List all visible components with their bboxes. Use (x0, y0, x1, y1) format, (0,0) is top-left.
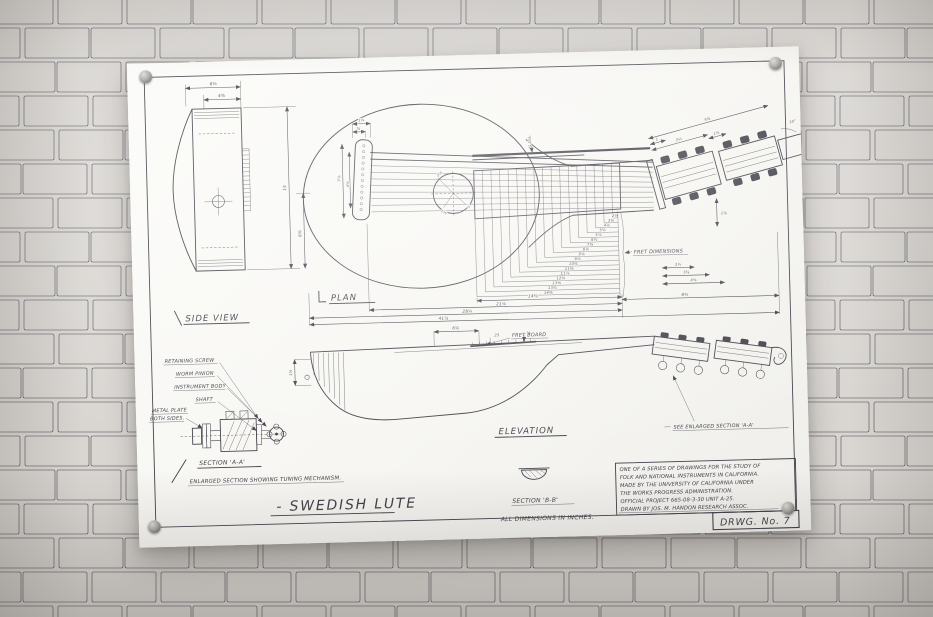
brick (0, 470, 55, 500)
brick (671, 538, 735, 568)
fret-dim-extension (535, 215, 536, 263)
head-dim-low1: 2½ (675, 262, 682, 266)
part-both-sides: BOTH SIDES. (150, 415, 185, 422)
brick (0, 62, 55, 92)
brick (57, 470, 121, 500)
fret-line (499, 169, 500, 217)
units-note: ALL DIMENSIONS IN INCHES. (500, 514, 594, 523)
fret-dims-brace (621, 213, 625, 297)
head-dim-low2: 3⅝ (683, 270, 690, 274)
brick (805, 402, 869, 432)
brick (841, 232, 905, 262)
brick (24, 96, 88, 126)
body-height-dims: 15 6⅜ (243, 106, 312, 270)
fret-line (594, 164, 595, 210)
brick (57, 266, 121, 296)
brick (0, 572, 21, 602)
section-aa-label: SECTION 'A-A' (199, 459, 245, 467)
section-bb: SECTION 'B-B' ALL DIMENSIONS IN INCHES. (499, 467, 595, 523)
fret-dim-label: 14⅜ (544, 291, 553, 295)
brick (397, 0, 461, 24)
brick (805, 198, 869, 228)
head-dim-side: 1⅝ (721, 211, 728, 215)
brick (839, 368, 903, 398)
brick (601, 606, 665, 617)
brick (874, 606, 933, 617)
bridge-top-small-dim: ⅝ (357, 127, 361, 131)
brick (59, 538, 123, 568)
brick (500, 572, 564, 602)
brick (296, 572, 360, 602)
headstock-elevation (650, 327, 787, 385)
brick (24, 504, 88, 534)
brick (0, 538, 54, 568)
brick (92, 572, 156, 602)
fretboard (474, 163, 621, 219)
overall-dim-4: 8¾ (681, 292, 688, 297)
fret-dim-label: 13⅜ (552, 281, 561, 285)
brick (839, 164, 903, 194)
fret-line (568, 166, 569, 213)
side-view: 6½ 4⅜ SIDE VIEW (168, 80, 253, 325)
brick (0, 300, 19, 330)
brick (262, 606, 326, 617)
fret-dim-extension (501, 217, 503, 282)
strings (370, 145, 654, 214)
brick (602, 538, 666, 568)
brick (295, 28, 359, 58)
brick (875, 334, 933, 364)
fret-dim-label: 5⅛ (599, 228, 606, 232)
head-dim-low3: 4⅛ (690, 278, 697, 282)
fret-line (534, 168, 535, 215)
bridge-pins (360, 145, 365, 211)
brick (805, 606, 869, 617)
brick (0, 402, 53, 432)
plan-label: PLAN (331, 293, 357, 304)
fret-dim-extension (526, 215, 527, 267)
fret-line (482, 170, 483, 218)
fret-line (491, 170, 492, 218)
brick (23, 164, 87, 194)
fret-dim-extension (484, 218, 486, 292)
brick (58, 0, 122, 24)
lute-technical-drawing: 6½ 4⅜ SIDE VIEW (127, 46, 811, 547)
fret-line (577, 165, 578, 212)
brick (907, 436, 933, 466)
head-dim-seg1: 1 (655, 137, 659, 142)
brick (23, 368, 87, 398)
brick (737, 538, 801, 568)
brick (807, 266, 871, 296)
brick (91, 28, 155, 58)
body-height-dim: 15 (282, 185, 287, 191)
fret-dim-label: 11⅜ (565, 267, 574, 271)
brick (908, 572, 933, 602)
elev-fret-height-dim: .25 (493, 333, 500, 337)
fret-line (525, 168, 526, 215)
brick (0, 232, 20, 262)
elev-edge-depth-dim: 1⅝ (289, 369, 293, 376)
fret-dim-label: 9⅞ (574, 257, 581, 261)
brick (58, 402, 122, 432)
body-lower-height-dim: 6⅜ (297, 230, 302, 237)
sound-hole: 2⅝ 1⅜ ⅞ (431, 169, 476, 216)
brick (907, 232, 933, 262)
brick (873, 266, 933, 296)
brick (25, 436, 89, 466)
fret-dim-label: 7⅜ (587, 243, 594, 247)
brick (0, 606, 53, 617)
fret-line (542, 167, 543, 214)
fret-dim-extension (475, 219, 477, 297)
brick (907, 28, 933, 58)
brick (364, 28, 428, 58)
brick (365, 572, 429, 602)
brick (533, 538, 597, 568)
overall-dim-0: 14⅝ (528, 293, 538, 298)
fret-dim-extension (509, 217, 511, 278)
fret-line (560, 166, 561, 213)
note-line-3: MADE BY THE UNIVERSITY OF CALIFORNIA UND… (620, 480, 754, 490)
brick (874, 402, 933, 432)
bridge-outer-dim: 7⅞ (337, 175, 341, 182)
brick (127, 606, 191, 617)
bridge-top-wide-dim: 1¼ (358, 118, 365, 122)
brick (24, 300, 88, 330)
fret-dim-label: 13¾ (548, 286, 557, 290)
brick (466, 0, 530, 24)
brick (431, 572, 495, 602)
elevation-view: 6⅛ .25 ⅛ 1⅝ FRET BOARD (288, 317, 790, 443)
drawing-title: - SWEDISH LUTE (276, 495, 417, 515)
brick (873, 62, 933, 92)
brick (193, 606, 257, 617)
brick (329, 538, 393, 568)
head-dim-total: 5⅜ (704, 116, 711, 122)
brick (0, 164, 21, 194)
fret-dim-extension (561, 213, 562, 248)
brick (59, 334, 123, 364)
tuning-mechanism-drawing (180, 410, 287, 453)
fret-dim-label: 3⅜ (608, 218, 615, 222)
part-shaft: SHAFT (196, 397, 214, 403)
brick (0, 436, 20, 466)
photo-scene: 6½ 4⅜ SIDE VIEW (0, 0, 933, 617)
fret-line (551, 167, 552, 214)
brick (23, 572, 87, 602)
brick (0, 96, 19, 126)
fret-dim-extension (518, 216, 519, 272)
fret-dim-label: 5⅞ (595, 233, 602, 237)
brick (805, 0, 869, 24)
brick (466, 606, 530, 617)
head-dim-seg3: 1⅛ (713, 130, 720, 136)
neck-dia-note: ⅝ DIA. (528, 134, 532, 148)
brick (0, 28, 20, 58)
brick (25, 232, 89, 262)
brick (670, 0, 734, 24)
brick (331, 606, 395, 617)
brick (0, 198, 53, 228)
fret-dim-label: 2⅛ (612, 214, 619, 218)
brick (0, 0, 53, 24)
part-metal-plate: METAL PLATE (152, 407, 188, 414)
brick (601, 0, 665, 24)
fret-dim-label: 9⅛ (579, 252, 586, 256)
brick (841, 28, 905, 58)
brick (840, 300, 904, 330)
brick (875, 130, 933, 160)
section-bb-label: SECTION 'B-B' (512, 497, 558, 505)
brick (58, 606, 122, 617)
brick (739, 606, 803, 617)
side-view-peg-hatch (242, 149, 251, 211)
brick (841, 436, 905, 466)
fret-dim-extension (552, 214, 553, 253)
brick (807, 470, 871, 500)
overall-dims: 14⅝ 8¾ 21⅛ 28¼ 41⅞ (307, 213, 779, 326)
brick (57, 62, 121, 92)
fret-board-label: FRET BOARD (512, 332, 546, 339)
note-line-6: DRAWN BY JOS. M. HANDON RESEARCH ASSOC. (621, 504, 749, 513)
brick (569, 572, 633, 602)
bridge-inner-dim: 4⅝ (346, 181, 350, 188)
elev-overhang-dim: 6⅛ (452, 325, 459, 330)
brick (535, 0, 599, 24)
blueprint-poster: 6½ 4⅜ SIDE VIEW (127, 46, 811, 547)
fret-dim-label: 6¾ (591, 238, 598, 242)
fret-line (585, 165, 586, 211)
brick (160, 28, 224, 58)
fret-dim-label: 11⅞ (561, 271, 570, 275)
fret-dim-label: 12⅝ (556, 276, 565, 280)
notes-block: ONE OF A SERIES OF DRAWINGS FOR THE STUD… (615, 458, 799, 532)
brick (397, 606, 461, 617)
brick (908, 164, 933, 194)
fret-dim-extension (578, 212, 579, 238)
fret-dim-label: 4⅛ (604, 223, 611, 227)
brick (704, 572, 768, 602)
overall-dim-2: 28¼ (462, 308, 472, 313)
brick (909, 504, 933, 534)
part-worm-pinion: WORM PINION (176, 371, 214, 378)
side-inner-width-dim: 4⅜ (218, 93, 225, 98)
brick (193, 0, 257, 24)
brick (840, 96, 904, 126)
brick (773, 572, 837, 602)
brick (875, 538, 933, 568)
brick (874, 198, 933, 228)
brick (0, 266, 55, 296)
fret-dim-extension (544, 214, 545, 257)
fret-dim-label: 8⅛ (583, 247, 590, 251)
brick (25, 28, 89, 58)
soundhole-dim-2: 1⅜ (440, 209, 448, 215)
brick (331, 0, 395, 24)
brick (806, 130, 870, 160)
head-dim-seg2: 2¼ (675, 137, 682, 143)
side-outer-width-dim: 6½ (210, 81, 217, 86)
brick (227, 572, 291, 602)
fret-line (508, 169, 509, 217)
brick (635, 572, 699, 602)
brick (535, 606, 599, 617)
brick (229, 28, 293, 58)
brick (839, 572, 903, 602)
brick (0, 504, 19, 534)
plan-view: ⅝ 1¼ 7⅞ 4⅝ 2⅝ (301, 91, 811, 327)
brick (262, 0, 326, 24)
brick (873, 470, 933, 500)
brick (0, 334, 54, 364)
brick (806, 334, 870, 364)
brick (0, 130, 54, 160)
brick (161, 572, 225, 602)
brick (59, 130, 123, 160)
brick (670, 606, 734, 617)
brick (908, 368, 933, 398)
elevation-label: ELEVATION (498, 426, 554, 437)
fret-dim-label: 10⅝ (569, 262, 578, 266)
tailpiece (352, 139, 372, 220)
brick (58, 198, 122, 228)
fret-dim-extension (492, 218, 494, 287)
fret-dimension-cascade: 14⅜13¾13⅜12⅝11⅞11⅜10⅝9⅞9⅛8⅛7⅜6¾5⅞5⅛4⅛3⅜2… (475, 209, 621, 296)
brick (874, 0, 933, 24)
brick (0, 368, 21, 398)
brick (807, 62, 871, 92)
brick (840, 504, 904, 534)
brick (127, 0, 191, 24)
brick (909, 96, 933, 126)
overall-dim-1: 21⅛ (496, 301, 506, 306)
brick (398, 538, 462, 568)
brick (909, 300, 933, 330)
brick (467, 538, 531, 568)
brick (739, 0, 803, 24)
head-dim-angle: 10° (789, 119, 797, 125)
overall-dim-3: 41⅞ (439, 316, 449, 321)
side-view-label: SIDE VIEW (185, 313, 239, 324)
drawing-number: DRWG. No. 7 (720, 516, 791, 529)
brick (806, 538, 870, 568)
